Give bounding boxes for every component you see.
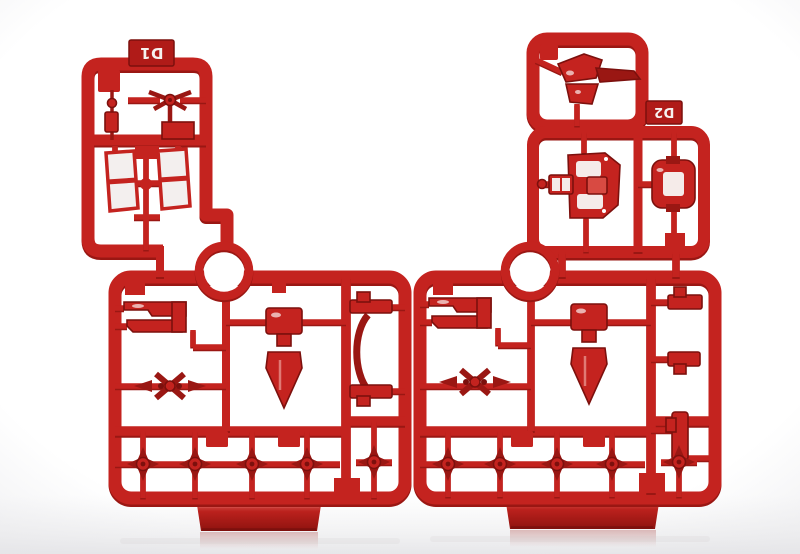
d1-label-tab: D1 (129, 40, 174, 66)
d2-label-tab: D2 (646, 101, 682, 124)
photo-canvas: D1 (0, 0, 800, 554)
d2-label-text: D2 (654, 104, 675, 119)
d2-armor-shell-right (652, 156, 695, 212)
d2-armor-shell-center (568, 153, 620, 218)
display-stand-left (197, 505, 321, 531)
d1-panel-left (106, 151, 138, 211)
d1-ring-part (199, 246, 249, 298)
d1-panel-right (158, 149, 190, 209)
sprue-photo: D1 (0, 0, 800, 554)
d2-ring-part (505, 246, 555, 298)
d1-label-text: D1 (140, 44, 164, 62)
